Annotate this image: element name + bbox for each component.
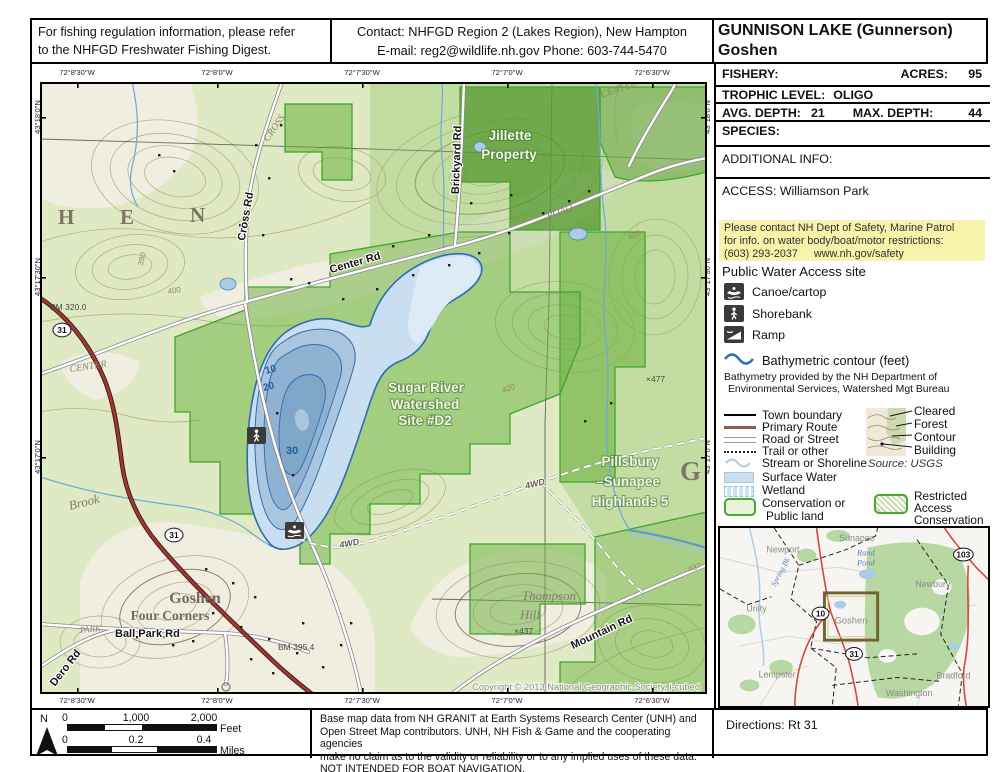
topo-map-canvas: 31 31 (40, 82, 707, 694)
bathymetry-note-line2: Environmental Services, Watershed Mgt Bu… (728, 384, 949, 395)
coord-bottom-4: 72°7'0"W (467, 696, 547, 705)
wetland-swatch (724, 486, 754, 497)
additional-info-row: ADDITIONAL INFO: (716, 147, 990, 179)
route-shield-label: 31 (169, 530, 179, 540)
disclaimer-line3: make no claim as to the validity or reli… (320, 751, 712, 764)
hill-label-thompson: Hill (519, 607, 541, 622)
route-shield-label: 31 (57, 325, 67, 335)
conservation-label-2: Public land (766, 509, 824, 523)
inset-label-lempster: Lempster (759, 669, 796, 679)
town-letter: N (190, 203, 207, 227)
acres-value: 95 (948, 67, 982, 85)
coord-top-4: 72°7'0"W (467, 68, 547, 77)
conservation-swatch (724, 498, 756, 516)
topo-source-label: Source: USGS (868, 458, 943, 470)
miles-tick-02: 0.2 (116, 734, 156, 746)
page-title: GUNNISON LAKE (Gunnerson) (718, 21, 982, 41)
fishery-label: FISHERY: (722, 67, 778, 85)
town-letter: G (680, 456, 701, 486)
feet-scale-bar (67, 724, 217, 731)
access-legend-title: Public Water Access site (722, 264, 866, 279)
conservation-label-pillsbury: Highlands 5 (592, 494, 669, 509)
inset-label-washington: Washington (886, 688, 932, 698)
stream-label: Stream or Shoreline (762, 456, 867, 470)
benchmark-label: BM 395.4 (278, 642, 315, 652)
locator-inset-map: 10 31 103 Sunapee Newport Rand Pond Newb… (718, 526, 990, 708)
surface-water-label: Surface Water (762, 470, 837, 484)
max-depth-label: MAX. DEPTH: (853, 106, 934, 120)
topo-building-label: Building (914, 443, 956, 457)
benchmark-label: BM 320.0 (50, 302, 87, 312)
regulation-line2: to the NHFGD Freshwater Fishing Digest. (38, 41, 324, 59)
watershed-label: Site #D2 (398, 413, 451, 428)
copyright-note: Copyright:© 2013 National Geographic Soc… (472, 682, 700, 692)
coord-bottom-2: 72°8'0"W (177, 696, 257, 705)
stream-swatch (724, 456, 758, 469)
scale-box: N 0 1,000 2,000 Feet 0 0.2 0.4 Miles (32, 710, 312, 758)
inset-label-goshen: Goshen (835, 615, 868, 625)
miles-scale-bar (67, 746, 217, 753)
notice-line1: Please contact NH Dept of Safety, Marine… (724, 222, 980, 235)
disclaimer-line4: NOT INTENDED FOR BOAT NAVIGATION. (320, 763, 712, 772)
notice-line2: for info. on water body/boat/motor restr… (724, 235, 980, 248)
topo-label-park: PARK (78, 623, 102, 635)
miles-unit-label: Miles (220, 745, 245, 757)
inset-label-newbury: Newbury (915, 579, 951, 589)
max-depth-value: 44 (948, 106, 982, 120)
trophic-label: TROPHIC LEVEL: (722, 88, 825, 102)
route-31-shield-2: 31 (165, 528, 183, 542)
coord-top-1: 72°8'30"W (37, 68, 117, 77)
inset-shield-103: 103 (956, 550, 970, 560)
coord-bottom-5: 72°6'30"W (612, 696, 692, 705)
shorebank-label: Shorebank (752, 307, 812, 321)
inset-label-unity: Unity (746, 604, 767, 614)
coord-bottom-3: 72°7'30"W (322, 696, 402, 705)
bathymetric-contour-swatch (722, 350, 758, 366)
elevation-label: ×437 (514, 626, 533, 636)
canoe-cartop-icon (724, 283, 744, 300)
depth-label-30: 30 (286, 445, 298, 457)
notice-url: www.nh.gov/safety (814, 248, 904, 260)
additional-info-label: ADDITIONAL INFO: (722, 152, 832, 166)
trophic-row: TROPHIC LEVEL: OLIGO (716, 87, 990, 104)
feet-tick-0: 0 (45, 712, 85, 724)
road-label-brickyard-rd: Brickyard Rd (450, 125, 464, 194)
road-label-ball-park-rd: Ball Park Rd (115, 628, 180, 640)
coord-bottom-1: 72°8'30"W (37, 696, 117, 705)
coord-top-3: 72°7'30"W (322, 68, 402, 77)
town-letter: H (58, 205, 76, 229)
directions-box: Directions: Rt 31 (714, 710, 986, 758)
primary-route-swatch (724, 426, 756, 429)
inset-canvas: 10 31 103 Sunapee Newport Rand Pond Newb… (720, 528, 988, 706)
inset-label-sunapee: Sunapee (839, 533, 875, 543)
contour-elevation: 400 (167, 285, 182, 296)
restricted-access-swatch (874, 494, 908, 514)
map-region: 72°8'30"W 72°8'0"W 72°7'30"W 72°7'0"W 72… (32, 64, 714, 708)
property-label-jillette: Jillette (489, 128, 532, 143)
conservation-label-pillsbury: –Sunapee (596, 474, 660, 489)
miles-tick-04: 0.4 (184, 734, 224, 746)
inset-shield-31: 31 (849, 649, 859, 659)
shorebank-icon (724, 305, 744, 322)
trail-swatch (724, 451, 756, 453)
disclaimer-line2: Open Street Map contributors. UNH, NH Fi… (320, 726, 712, 751)
feet-tick-1000: 1,000 (116, 712, 156, 724)
acres-label: ACRES: (901, 67, 949, 85)
canoe-access-icon (285, 522, 304, 539)
inset-label-rand: Rand (856, 549, 875, 558)
contact-box: Contact: NHFGD Region 2 (Lakes Region), … (332, 20, 714, 62)
topo-contour-label: Contour (914, 430, 956, 444)
feet-tick-2000: 2,000 (184, 712, 224, 724)
regulation-note: For fishing regulation information, plea… (32, 20, 332, 62)
miles-tick-0: 0 (45, 734, 85, 746)
route-31-shield-1: 31 (53, 323, 71, 337)
inset-label-newport: Newport (767, 545, 801, 555)
bathymetry-note-line1: Bathymetry provided by the NH Department… (724, 372, 937, 383)
village-label-goshen: Goshen (169, 590, 221, 607)
disclaimer-line1: Base map data from NH GRANIT at Earth Sy… (320, 713, 712, 726)
road-street-swatch (724, 437, 756, 443)
avg-depth-label: AVG. DEPTH: (722, 106, 801, 120)
disclaimer-box: Base map data from NH GRANIT at Earth Sy… (312, 710, 714, 758)
shorebank-access-icon (247, 427, 266, 444)
access-text: ACCESS: Williamson Park (722, 184, 869, 198)
lake-map-sheet: For fishing regulation information, plea… (0, 0, 1000, 772)
village-label-four-corners: Four Corners (131, 608, 210, 623)
conservation-label-1: Conservation or (762, 496, 845, 510)
topo-cleared-label: Cleared (914, 404, 955, 418)
bathymetric-contour-label: Bathymetric contour (feet) (762, 353, 909, 368)
fishery-row: FISHERY: ACRES: 95 (716, 64, 990, 87)
marine-patrol-notice: Please contact NH Dept of Safety, Marine… (719, 220, 985, 261)
coord-top-5: 72°6'30"W (612, 68, 692, 77)
inset-shield-10: 10 (816, 609, 826, 619)
inset-label-pond: Pond (856, 558, 875, 567)
contact-line2: E-mail: reg2@wildlife.nh.gov Phone: 603-… (336, 42, 708, 61)
notice-phone: (603) 293-2037 (724, 248, 798, 260)
regulation-line1: For fishing regulation information, plea… (38, 23, 324, 41)
title-box: GUNNISON LAKE (Gunnerson) Goshen (714, 20, 986, 62)
inset-label-bradford: Bradford (937, 670, 971, 680)
access-row: ACCESS: Williamson Park (716, 179, 990, 210)
avg-depth-value: 21 (811, 106, 825, 120)
hill-label-thompson: Thompson (522, 588, 576, 603)
page-subtitle: Goshen (718, 41, 982, 61)
trophic-value: OLIGO (833, 88, 873, 102)
info-panel: FISHERY: ACRES: 95 TROPHIC LEVEL: OLIGO … (714, 64, 990, 708)
usgs-topo-sample (866, 406, 912, 458)
town-boundary-swatch (724, 414, 756, 416)
surface-water-swatch (724, 472, 754, 483)
topo-forest-label: Forest (914, 417, 947, 431)
watershed-label: Sugar River (388, 380, 465, 395)
depth-row: AVG. DEPTH: 21 MAX. DEPTH: 44 (716, 104, 990, 122)
restricted-label-3: Conservation (914, 513, 984, 527)
document-frame: For fishing regulation information, plea… (30, 18, 988, 756)
ramp-icon (724, 326, 744, 343)
contact-line1: Contact: NHFGD Region 2 (Lakes Region), … (336, 23, 708, 42)
elevation-label: ×477 (646, 374, 665, 384)
ramp-label: Ramp (752, 328, 785, 342)
wetland-label: Wetland (762, 483, 805, 497)
species-label: SPECIES: (722, 124, 780, 138)
conservation-label-pillsbury: Pillsbury (601, 454, 659, 469)
coord-top-2: 72°8'0"W (177, 68, 257, 77)
species-row: SPECIES: (716, 122, 990, 147)
directions-text: Directions: Rt 31 (726, 718, 818, 732)
property-label-jillette: Property (481, 147, 537, 162)
town-letter: E (120, 205, 136, 229)
watershed-label: Watershed (391, 397, 460, 412)
canoe-cartop-label: Canoe/cartop (752, 285, 826, 299)
